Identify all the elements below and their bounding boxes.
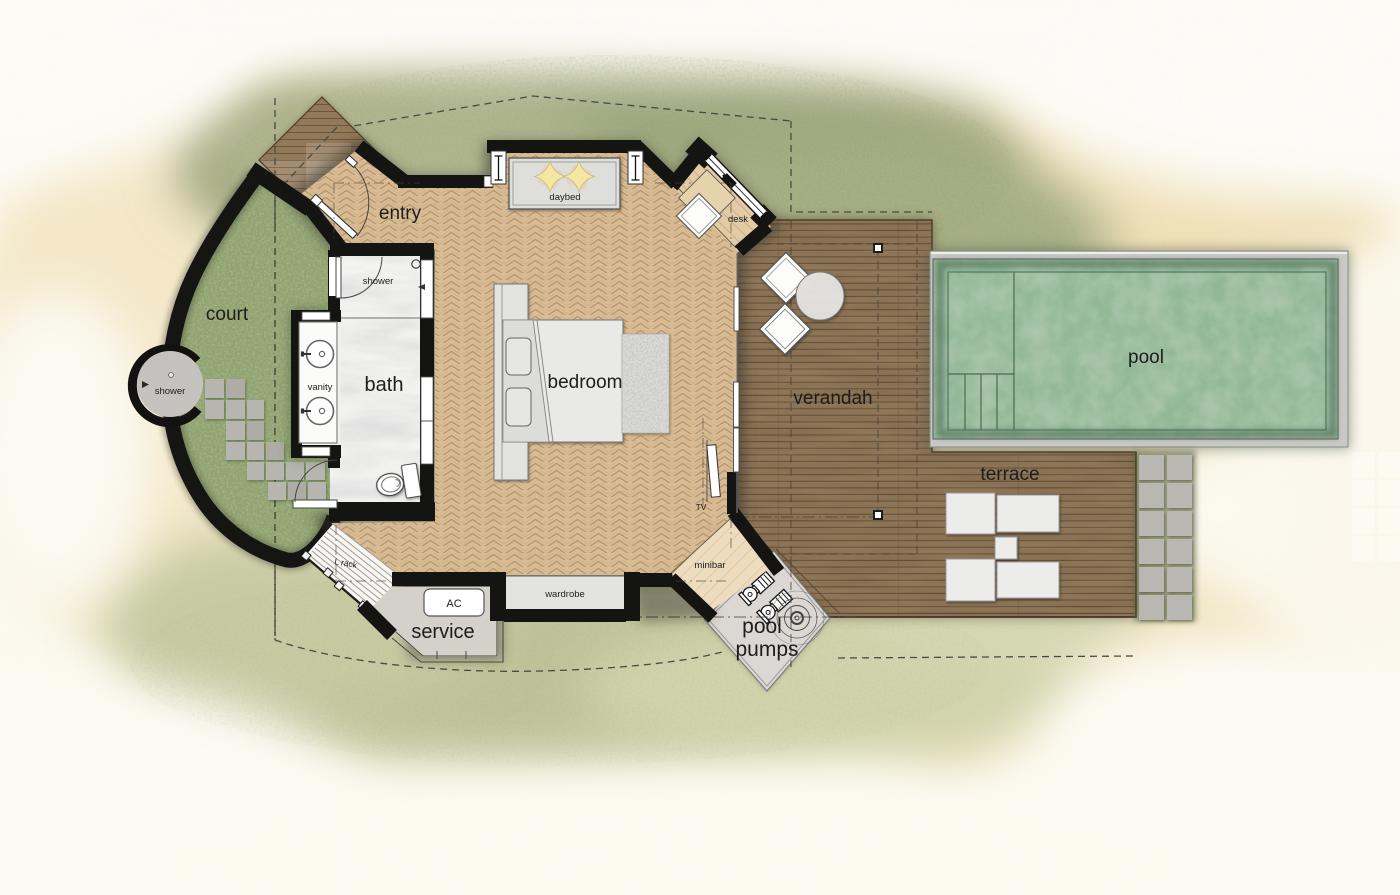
svg-text:service: service <box>411 621 474 643</box>
svg-text:daybed: daybed <box>549 192 580 203</box>
svg-text:AC: AC <box>446 598 461 610</box>
svg-text:shower: shower <box>363 276 394 287</box>
svg-text:desk: desk <box>728 214 748 225</box>
svg-text:wardrobe: wardrobe <box>544 589 585 600</box>
svg-text:TV: TV <box>696 502 707 512</box>
svg-text:terrace: terrace <box>980 464 1039 485</box>
svg-text:pumps: pumps <box>735 638 798 661</box>
svg-text:pool: pool <box>742 615 782 638</box>
svg-text:bedroom: bedroom <box>548 372 623 393</box>
svg-text:court: court <box>206 304 249 325</box>
svg-text:bath: bath <box>365 374 404 396</box>
svg-text:entry: entry <box>379 203 422 224</box>
svg-text:minibar: minibar <box>694 560 725 571</box>
svg-text:verandah: verandah <box>793 388 872 409</box>
svg-text:pool: pool <box>1128 347 1164 368</box>
svg-text:shower: shower <box>155 386 186 397</box>
svg-text:vanity: vanity <box>308 382 333 393</box>
